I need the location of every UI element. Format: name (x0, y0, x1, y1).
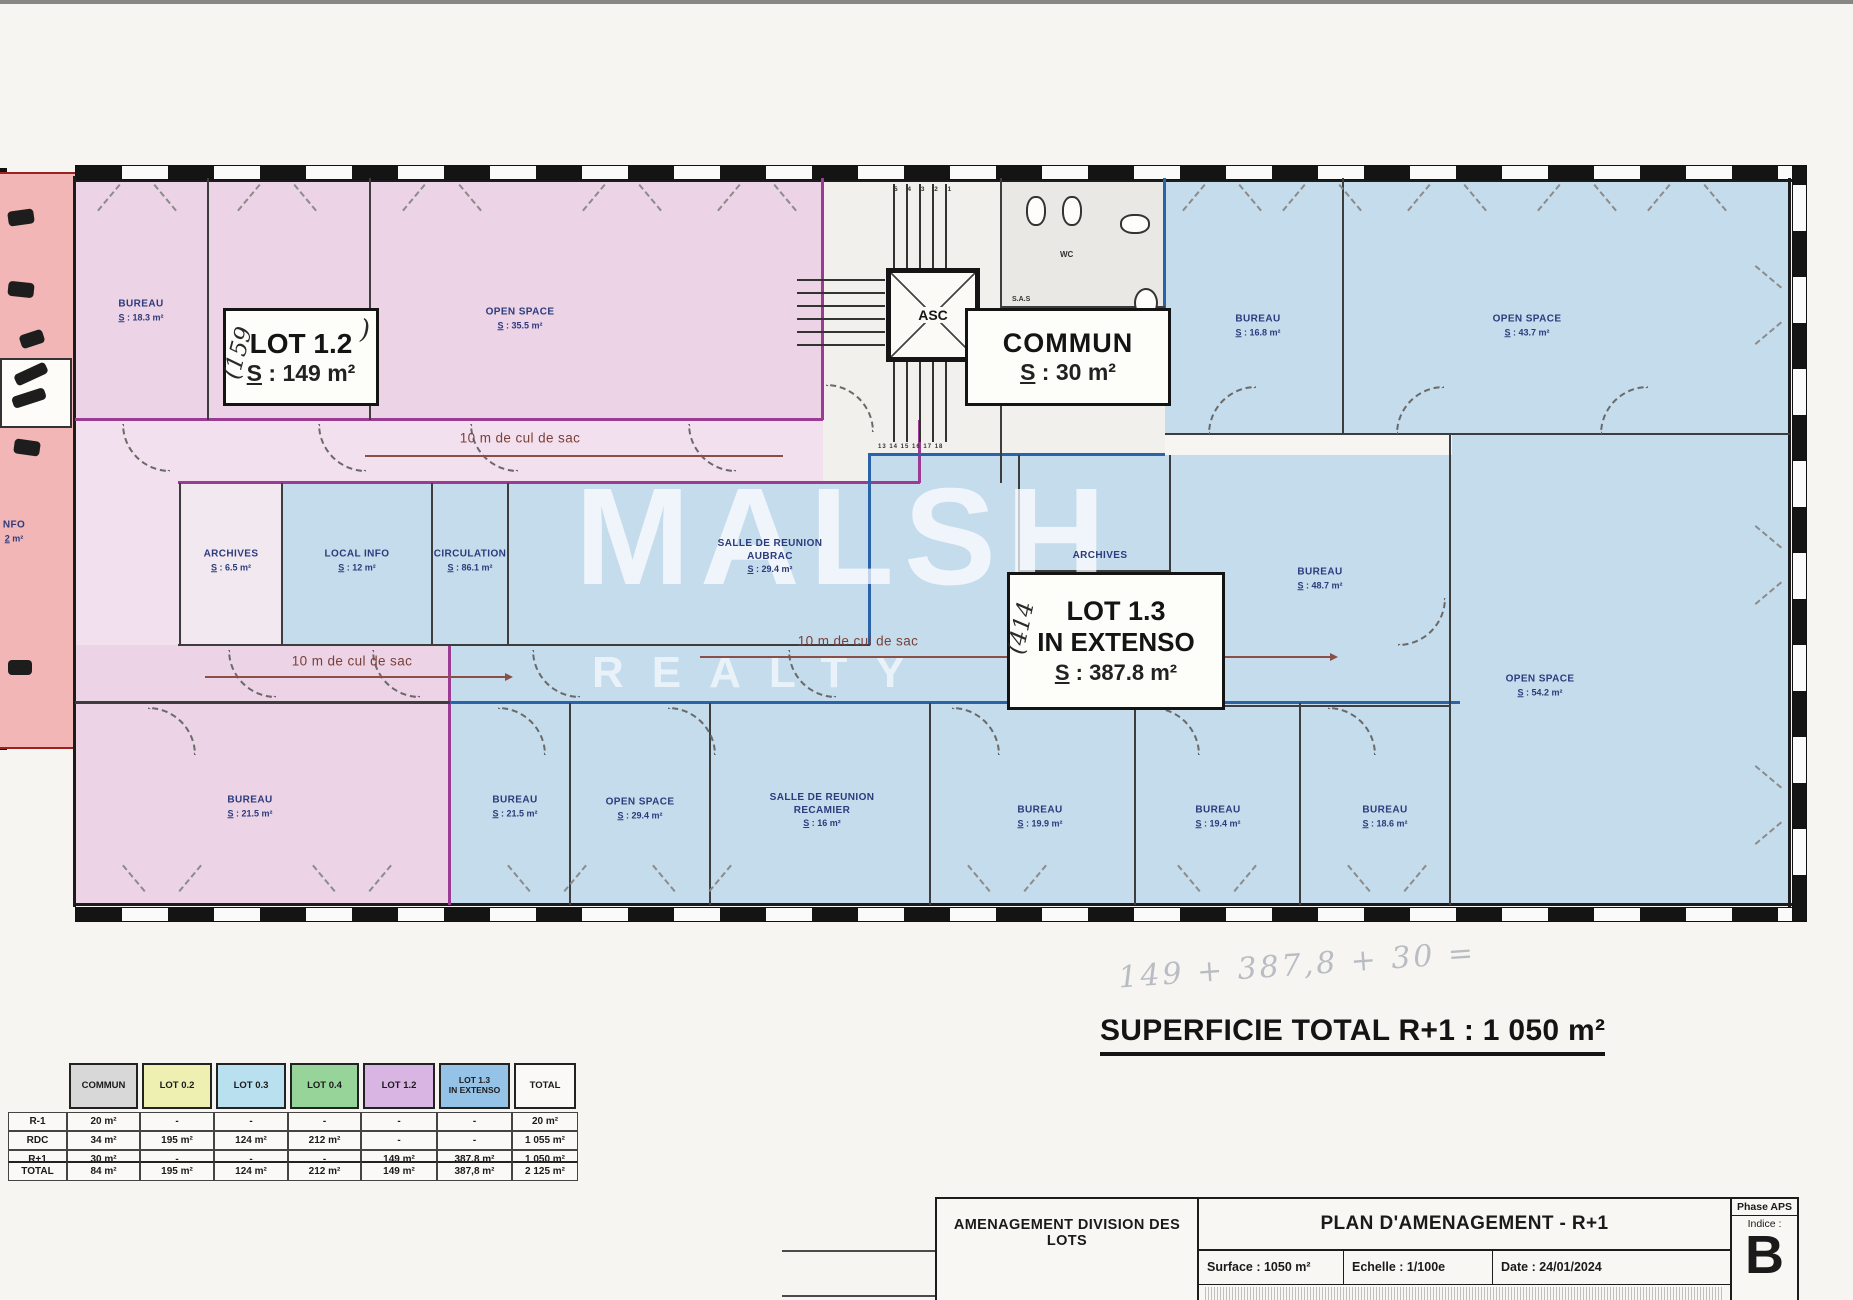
scan-top-line (0, 0, 1853, 4)
lot13-label-box: LOT 1.3 IN EXTENSO S : 387.8 m² (1007, 572, 1225, 710)
outer-wall (75, 903, 1792, 906)
partition-wall (1134, 703, 1136, 905)
toilet-icon (1026, 196, 1046, 226)
window-mark (1425, 184, 1469, 214)
room-name: OPEN SPACE (445, 306, 595, 319)
partition-wall (1449, 435, 1451, 905)
table-cell: 149 m² (361, 1161, 437, 1181)
titleblock-extension-line (782, 1250, 937, 1252)
table-header-lot02: LOT 0.2 (142, 1063, 212, 1109)
room-area: S : 29.4 m² (695, 564, 845, 574)
titleblock-date: Date : 24/01/2024 (1493, 1251, 1730, 1285)
room-name: BUREAU (175, 794, 325, 807)
table-cell: - (214, 1112, 288, 1131)
window-mark (670, 862, 714, 892)
lot12-boundary-wall (75, 418, 823, 421)
room-name: OPEN SPACE (1452, 313, 1602, 326)
table-header-lot04: LOT 0.4 (290, 1063, 359, 1109)
titleblock-fineprint (1205, 1287, 1724, 1300)
table-header-commun: COMMUN (69, 1063, 138, 1109)
room-label: OPEN SPACES : 29.4 m² (565, 796, 715, 820)
window-mark (1752, 283, 1782, 327)
annotation-cul-de-sac: 10 m de cul de sac (798, 634, 919, 649)
room-name: NFO (0, 519, 44, 532)
outer-wall (73, 176, 76, 907)
room-name: OPEN SPACE (1465, 673, 1615, 686)
window-mark (255, 184, 299, 214)
lot12-title: LOT 1.2 (250, 328, 353, 360)
surface-table-total-row: TOTAL 84 m² 195 m² 124 m² 212 m² 149 m² … (8, 1161, 578, 1181)
wc-label: WC (1060, 250, 1073, 259)
room-label: SALLE DE REUNION RECAMIERS : 16 m² (747, 792, 897, 828)
window-mark (525, 862, 569, 892)
room-label: OPEN SPACES : 43.7 m² (1452, 313, 1602, 337)
room-area: S : 29.4 m² (565, 810, 715, 820)
partition-wall (1299, 703, 1301, 905)
room-area: S : 35.5 m² (445, 320, 595, 330)
table-row-label: TOTAL (8, 1161, 67, 1181)
chair-icon (7, 281, 34, 299)
window-mark (1665, 184, 1709, 214)
table-cell: 1 055 m² (512, 1131, 578, 1150)
table-cell: 195 m² (140, 1161, 214, 1181)
table-cell: - (361, 1131, 437, 1150)
annotation-line (205, 676, 505, 678)
stair-step-numbers: 5 4 3 2 1 (894, 186, 955, 193)
table-row-label: R-1 (8, 1112, 67, 1131)
commun-title: COMMUN (1003, 328, 1133, 359)
toilet-icon (1120, 214, 1150, 234)
window-mark (420, 184, 464, 214)
window-mark (1300, 184, 1344, 214)
surface-table: COMMUN LOT 0.2 LOT 0.3 LOT 0.4 LOT 1.2 L… (8, 1063, 578, 1169)
table-cell: 387,8 m² (437, 1161, 512, 1181)
handwritten-formula: 149 + 387,8 + 30 = (1117, 936, 1477, 996)
annotation-cul-de-sac: 10 m de cul de sac (460, 431, 581, 446)
room-label-fragment: NFO 2 m² (0, 519, 44, 543)
table-cell: - (140, 1112, 214, 1131)
titleblock-project: AMENAGEMENT DIVISION DES LOTS (937, 1199, 1199, 1300)
table-cell: - (361, 1112, 437, 1131)
chair-icon (8, 660, 32, 675)
partition-wall (178, 644, 870, 646)
partition-wall (929, 703, 931, 905)
room-label: OPEN SPACES : 54.2 m² (1465, 673, 1615, 697)
room-area: S : 86.1 m² (433, 562, 507, 572)
window-mark (140, 862, 184, 892)
lot13-zone-strip (1452, 435, 1790, 460)
titleblock-surface: Surface : 1050 m² (1199, 1251, 1344, 1285)
commun-label-box: COMMUN S : 30 m² (965, 308, 1171, 406)
facade-window-band-bottom (75, 907, 1794, 922)
titleblock-indice-value: B (1745, 1230, 1784, 1281)
room-area: 2 m² (0, 533, 44, 543)
room-area: S : 19.9 m² (965, 818, 1115, 828)
window-mark (600, 184, 644, 214)
room-area: S : 43.7 m² (1452, 327, 1602, 337)
room-area: S : 16 m² (747, 818, 897, 828)
toilet-icon (1062, 196, 1082, 226)
room-area: S : 54.2 m² (1465, 687, 1615, 697)
room-label: CIRCULATIONS : 86.1 m² (433, 548, 507, 572)
room-label: LOCAL INFOS : 12 m² (282, 548, 432, 572)
table-cell: - (437, 1131, 512, 1150)
facade-window-band-top (75, 165, 1794, 180)
room-label: BUREAUS : 18.3 m² (66, 298, 216, 322)
table-cell: - (437, 1112, 512, 1131)
titleblock-middle: PLAN D'AMENAGEMENT - R+1 Surface : 1050 … (1199, 1199, 1732, 1300)
room-name: BUREAU (66, 298, 216, 311)
table-cell: 124 m² (214, 1131, 288, 1150)
elevator-label: ASC (916, 307, 950, 323)
table-cell: 195 m² (140, 1131, 214, 1150)
lot13-subtitle: IN EXTENSO (1037, 627, 1194, 658)
window-mark (1752, 783, 1782, 827)
room-area: S : 18.6 m² (1310, 818, 1460, 828)
room-area: S : 16.8 m² (1183, 327, 1333, 337)
room-area: S : 19.4 m² (1143, 818, 1293, 828)
room-area: S : 48.7 m² (1245, 580, 1395, 590)
room-area: S : 12 m² (282, 562, 432, 572)
room-name: ARCHIVES (1025, 550, 1175, 563)
lot13-boundary-wall (448, 701, 1460, 704)
stair-step-numbers: 13 14 15 16 17 18 (878, 444, 943, 450)
annotation-arrow (505, 673, 513, 681)
titleblock-title: PLAN D'AMENAGEMENT - R+1 (1199, 1199, 1730, 1251)
table-cell: 20 m² (67, 1112, 140, 1131)
window-mark (115, 184, 159, 214)
annotation-arrow (1330, 653, 1338, 661)
table-cell: 212 m² (288, 1161, 361, 1181)
room-name: SALLE DE REUNION RECAMIER (747, 792, 897, 817)
room-name: OPEN SPACE (565, 796, 715, 809)
table-header-lot13: LOT 1.3 IN EXTENSO (439, 1063, 510, 1109)
room-label: ARCHIVES (1025, 550, 1175, 563)
room-label: BUREAUS : 48.7 m² (1245, 566, 1395, 590)
room-area: S : 21.5 m² (175, 808, 325, 818)
room-area: S : 18.3 m² (66, 312, 216, 322)
commun-area: S : 30 m² (1020, 359, 1116, 386)
table-header-lot12: LOT 1.2 (363, 1063, 435, 1109)
window-mark (1752, 543, 1782, 587)
partition-wall (75, 701, 450, 704)
table-header-total: TOTAL (514, 1063, 576, 1109)
window-mark (1555, 184, 1599, 214)
stair-flight (893, 184, 949, 268)
lot13-boundary-wall (868, 453, 1165, 456)
room-name: BUREAU (1143, 804, 1293, 817)
lot13-zone-topright (1165, 180, 1790, 435)
room-name: SALLE DE REUNION AUBRAC (695, 538, 845, 563)
titleblock-right: Phase APS Indice : B (1732, 1199, 1797, 1300)
table-cell: 212 m² (288, 1131, 361, 1150)
title-block: AMENAGEMENT DIVISION DES LOTS PLAN D'AME… (935, 1197, 1799, 1300)
table-cell: 84 m² (67, 1161, 140, 1181)
room-label: BUREAUS : 19.9 m² (965, 804, 1115, 828)
lot13-area: S : 387.8 m² (1055, 660, 1177, 686)
table-cell: 124 m² (214, 1161, 288, 1181)
table-cell: 20 m² (512, 1112, 578, 1131)
titleblock-subrow: Surface : 1050 m² Echelle : 1/100e Date … (1199, 1251, 1730, 1286)
stair-flight (893, 356, 949, 442)
table-cell: 34 m² (67, 1131, 140, 1150)
partition-wall (1165, 433, 1790, 435)
scanned-floor-plan-page: NFO 2 m² (0, 0, 1853, 1300)
table-cell: - (288, 1112, 361, 1131)
table-header-lot03: LOT 0.3 (216, 1063, 286, 1109)
lot13-boundary-wall (1163, 178, 1166, 308)
room-name: BUREAU (965, 804, 1115, 817)
window-mark (330, 862, 374, 892)
room-label: BUREAUS : 21.5 m² (175, 794, 325, 818)
table-header-empty (10, 1063, 65, 1105)
titleblock-extension-line (782, 1295, 937, 1297)
room-label: SALLE DE REUNION AUBRACS : 29.4 m² (695, 538, 845, 574)
room-name: BUREAU (1245, 566, 1395, 579)
stair-flight (797, 276, 885, 346)
window-mark (1200, 184, 1244, 214)
lot13-title: LOT 1.3 (1066, 596, 1165, 627)
facade-window-band-right (1792, 165, 1807, 922)
outer-wall (1788, 178, 1791, 907)
window-mark (1195, 862, 1239, 892)
room-label: BUREAUS : 19.4 m² (1143, 804, 1293, 828)
partition-wall (507, 483, 509, 645)
titleblock-echelle: Echelle : 1/100e (1344, 1251, 1493, 1285)
table-cell: 2 125 m² (512, 1161, 578, 1181)
lot-boundary-wall (448, 645, 451, 905)
lot12-area: S : 149 m² (247, 360, 356, 387)
superficie-total-heading: SUPERFICIE TOTAL R+1 : 1 050 m² (1100, 1014, 1605, 1056)
window-mark (735, 184, 779, 214)
handwritten-paren: ) (360, 315, 370, 345)
room-label: OPEN SPACES : 35.5 m² (445, 306, 595, 330)
window-mark (985, 862, 1029, 892)
annotation-line (365, 455, 783, 457)
room-name: BUREAU (1310, 804, 1460, 817)
window-mark (1365, 862, 1409, 892)
sas-label: S.A.S (1012, 296, 1030, 303)
room-name: BUREAU (1183, 313, 1333, 326)
titleblock-phase: Phase APS (1732, 1199, 1797, 1216)
table-row-label: RDC (8, 1131, 67, 1150)
room-label: BUREAUS : 18.6 m² (1310, 804, 1460, 828)
room-label: BUREAUS : 16.8 m² (1183, 313, 1333, 337)
annotation-cul-de-sac: 10 m de cul de sac (292, 654, 413, 669)
outer-wall (75, 180, 1792, 182)
room-name: LOCAL INFO (282, 548, 432, 561)
partition-wall (1342, 178, 1344, 435)
room-name: CIRCULATION (433, 548, 507, 561)
